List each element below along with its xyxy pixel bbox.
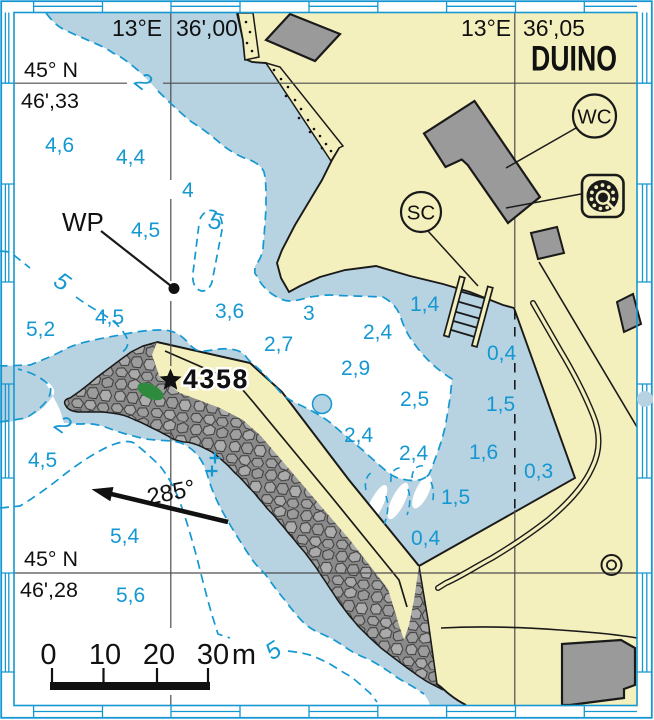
svg-text:4358: 4358: [183, 364, 249, 394]
svg-text:5,6: 5,6: [116, 584, 145, 607]
svg-text:4,6: 4,6: [45, 134, 74, 157]
svg-text:0,4: 0,4: [411, 527, 441, 550]
svg-text:36',05: 36',05: [523, 15, 585, 41]
svg-text:4,5: 4,5: [28, 449, 57, 472]
svg-text:2,5: 2,5: [400, 388, 429, 411]
svg-text:SC: SC: [407, 202, 436, 225]
svg-text:1,5: 1,5: [441, 486, 470, 509]
svg-text:5,2: 5,2: [26, 318, 55, 341]
svg-text:1,6: 1,6: [469, 441, 498, 464]
svg-text:0,4: 0,4: [487, 342, 517, 365]
svg-text:13°E: 13°E: [461, 15, 511, 41]
svg-text:2,4: 2,4: [344, 424, 374, 447]
svg-text:4: 4: [182, 179, 194, 202]
svg-text:1,4: 1,4: [410, 293, 440, 316]
svg-text:36',00: 36',00: [176, 15, 238, 41]
svg-text:5,4: 5,4: [110, 525, 140, 548]
svg-text:2,4: 2,4: [363, 321, 393, 344]
svg-text:4,5: 4,5: [131, 219, 160, 242]
svg-text:m: m: [232, 639, 256, 671]
svg-text:45° N: 45° N: [24, 547, 78, 571]
svg-text:46',33: 46',33: [21, 89, 79, 113]
svg-text:30: 30: [197, 639, 229, 671]
svg-text:DUINO: DUINO: [531, 40, 617, 79]
svg-text:4,5: 4,5: [95, 306, 124, 329]
svg-text:4,4: 4,4: [116, 146, 146, 169]
svg-text:1,5: 1,5: [486, 393, 515, 416]
svg-text:3: 3: [303, 302, 315, 325]
svg-text:2,4: 2,4: [399, 442, 429, 465]
svg-text:0,3: 0,3: [524, 460, 553, 483]
svg-text:20: 20: [143, 639, 175, 671]
svg-text:WC: WC: [577, 106, 611, 129]
svg-text:10: 10: [89, 639, 121, 671]
svg-text:45° N: 45° N: [24, 58, 78, 82]
svg-text:0: 0: [40, 639, 56, 671]
svg-text:2,9: 2,9: [341, 357, 370, 380]
svg-text:WP: WP: [62, 207, 104, 237]
svg-text:46',28: 46',28: [20, 578, 78, 602]
svg-text:2,7: 2,7: [264, 333, 293, 356]
svg-text:3,6: 3,6: [215, 300, 244, 323]
svg-text:13°E: 13°E: [112, 15, 162, 41]
